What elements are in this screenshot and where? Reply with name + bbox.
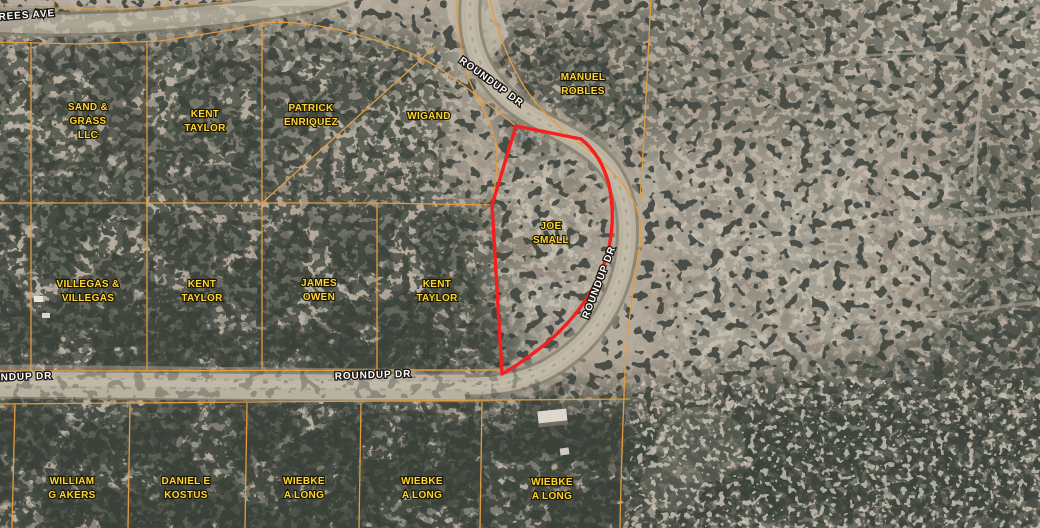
svg-text:WIGAND: WIGAND bbox=[407, 111, 450, 122]
